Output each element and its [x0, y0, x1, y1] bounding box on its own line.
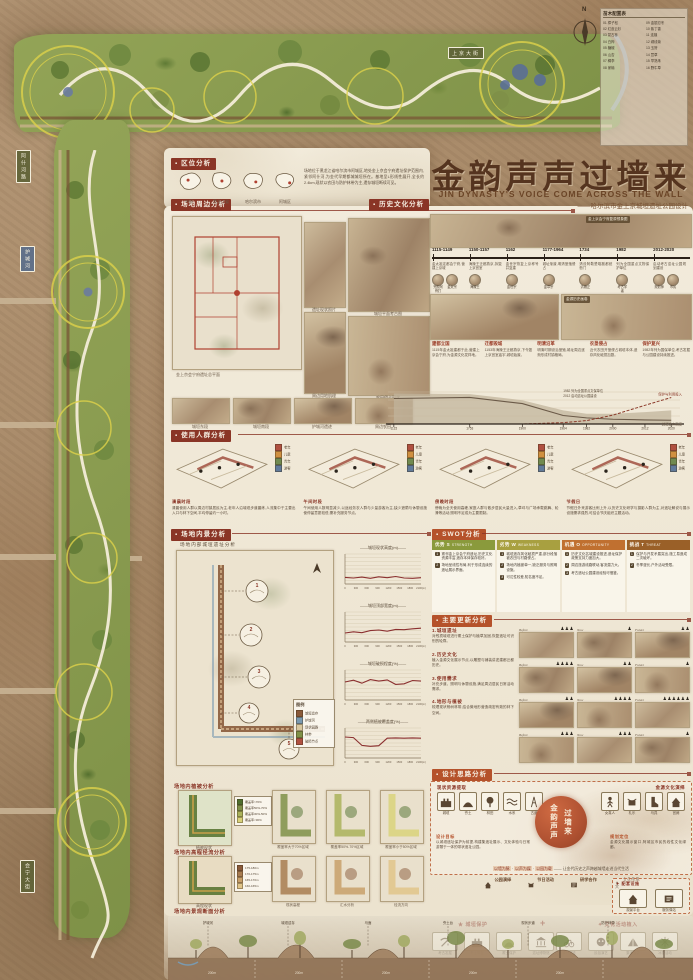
- user-legend-row: 青年: [670, 458, 686, 465]
- facility-icons: 观景平台服务驿站: [619, 889, 683, 913]
- renewal-items: 1.城垣遗址对残损城垣进行覆土保护与植草加固,恢复遗址可识别的轮廓。2.历史文化…: [432, 628, 514, 723]
- crowd-icons: ♟♟: [681, 626, 690, 632]
- legend-chip: [670, 444, 677, 451]
- user-desc: 节假日外来游客比例上升,以历史文化研学与摄影人群为主,对遗址解说与展示设施需求强…: [567, 506, 691, 517]
- renewal-col-label: Future: [635, 698, 644, 702]
- timeline-desc: 启动考古遗址公园规划建设: [653, 262, 686, 271]
- svg-text:1800: 1800: [407, 644, 413, 648]
- analysis-thumb: [380, 856, 424, 902]
- renewal-thumb: [577, 737, 632, 763]
- timeline-date: 1162: [506, 248, 540, 252]
- legend-chip: [407, 444, 414, 451]
- swot-item-bullet: 3: [500, 575, 505, 580]
- timeline-tick: [433, 254, 434, 261]
- swot-column-header: 优势 S STRENGTH: [432, 540, 495, 550]
- l-map-svg: [273, 857, 315, 901]
- svg-text:200m: 200m: [295, 971, 303, 975]
- renewal-col-label: Before: [519, 698, 528, 702]
- user-legend-row: 儿童: [538, 451, 554, 458]
- user-legend-row: 青年: [538, 458, 554, 465]
- swot-item-bullet: 2: [435, 563, 440, 568]
- icon-label: 马具: [645, 812, 663, 816]
- crowd-icons: ♟♟♟: [560, 626, 574, 632]
- timeline-desc: 金世宗恢复上京称号并复建: [506, 262, 539, 271]
- history-profile-svg: 11151753190019641982200020122020保护与利用投入城…: [382, 384, 690, 430]
- user-legend-row: 青年: [275, 458, 291, 465]
- concept-footer-item: 研学合作: [570, 876, 597, 884]
- swot-column-body: 1城垣遗存风化破损严重,部分段落被农田与村路侵占。2场地内植被单一,缺乏服务与照…: [497, 550, 560, 612]
- renewal-col-label: Before: [519, 663, 528, 667]
- timeline-portraits: 清雍正: [579, 274, 614, 290]
- concept-footer-label: 节日活动: [537, 877, 554, 883]
- svg-text:1200: 1200: [386, 586, 392, 590]
- plant-row: 16 野牛草: [646, 65, 685, 71]
- portrait-name: 完颜阿骨打: [432, 286, 444, 293]
- legend-chip: [296, 724, 303, 731]
- surrounding-photo: 城垣东段: [172, 398, 228, 429]
- svg-text:1115: 1115: [391, 427, 398, 431]
- user-legend-row: 青年: [407, 458, 423, 465]
- history-profile-chart: 11151753190019641982200020122020保护与利用投入城…: [382, 384, 690, 430]
- swot-item: 2场地呈线性布局,利于形成连续的遗址展示界面。: [435, 563, 492, 572]
- swot-item: 3考古遗址公园建设经验可借鉴。: [565, 571, 622, 576]
- swot-header-en: STRENGTH: [452, 543, 473, 547]
- photo-caption: 城垣南段: [233, 424, 289, 429]
- renewal-cell: Future♟: [635, 661, 690, 693]
- header-concept: 设计思路分析: [432, 769, 492, 781]
- svg-text:600: 600: [365, 702, 370, 706]
- surrounding-big-map-caption: 金上京会宁府遗址总平面: [176, 372, 300, 377]
- concept-left-para-text: 以城垣遗址保护为前提,构建集遗址展示、文化体验与日常游憩于一体的带状遗址公园。: [436, 840, 530, 851]
- wall-icon: [440, 796, 452, 808]
- swot-item-text: 可达性较差,知名度不足。: [506, 575, 545, 580]
- mound-icon: [462, 796, 474, 808]
- concept-box: 现状资源提取 金源文化演绎 城垣夯土林田水系古道 女真人礼乐马具宫阙 金韵声声 …: [430, 781, 692, 875]
- renewal-cell: Now♟♟♟: [577, 731, 632, 763]
- legend-chip: [670, 458, 677, 465]
- icon-label: 夯土: [459, 812, 477, 816]
- user-axon-diagram: [172, 440, 272, 497]
- svg-text:2012: 2012: [641, 427, 648, 431]
- renewal-item-desc: 补充步道、照明与休憩设施,满足周边居民日常活动需求。: [432, 682, 514, 693]
- drum-icon: [527, 881, 535, 889]
- svg-text:城垣遗存高度: 城垣遗存高度: [662, 421, 683, 426]
- l-map-svg: [273, 791, 315, 843]
- crowd-icons: ♟♟: [565, 696, 574, 702]
- concept-footer-item: 公园演绎: [484, 876, 511, 884]
- swot-header-en: THREAT: [646, 543, 661, 547]
- timeline-portraits: 规划师市民: [653, 274, 688, 290]
- location-paragraph: 场地位于黑龙江省哈尔滨市阿城区,地处金上京会宁府遗址保护范围内,紧邻阿什河,为金…: [304, 168, 424, 204]
- concept-right-para-text: 金源文化展示窗口,阿城区市民的线性文化绿廊。: [610, 840, 686, 851]
- inner-mini-charts: ——城垣现状高度(m)——03006009001200150018002100(…: [337, 546, 429, 778]
- tower-icon: [484, 881, 492, 889]
- svg-text:200m: 200m: [382, 971, 390, 975]
- seal-line-2: 过墙来: [563, 809, 574, 836]
- poster-root: N 苗木配置表 01 樟子松02 红皮云杉03 蒙古栎04 白桦05 糖槭06 …: [0, 0, 693, 980]
- swot-item-text: 场地内植被单一,缺乏服务与照明设施。: [506, 563, 557, 572]
- history-collage-war: [430, 294, 559, 340]
- swot-header-en: WEAKNESS: [518, 543, 539, 547]
- user-axon-diagram: [567, 440, 667, 497]
- svg-text:防护林带: 防护林带: [601, 920, 615, 925]
- water-iconbox: [503, 792, 521, 811]
- svg-text:900: 900: [375, 760, 380, 764]
- user-legend-row: 游客: [407, 465, 423, 472]
- legend-chip: [407, 465, 414, 472]
- location-map-label: 黑龙江省: [207, 199, 235, 204]
- user-legend-row: 游客: [275, 465, 291, 472]
- location-map: 黑龙江省: [207, 168, 235, 206]
- renewal-item: 1.城垣遗址对残损城垣进行覆土保护与植草加固,恢复遗址可识别的轮廓。: [432, 628, 514, 645]
- svg-text:1753: 1753: [466, 427, 473, 431]
- concept-footer-item: 节日活动: [527, 876, 554, 884]
- l-map-svg: [179, 791, 231, 845]
- mini-chart-svg: 03006009001200150018002100(m): [337, 550, 427, 594]
- swot-column-body: 1紧邻金上京会宁府遗址,历史文化资源丰富,遗存本体保存较好。2场地呈线性布局,利…: [432, 550, 495, 612]
- renewal-col-label: Now: [577, 733, 583, 737]
- l-map-svg: [381, 791, 423, 843]
- icon-label: 林田: [481, 812, 499, 816]
- timeline-date: 1177-1964: [543, 248, 577, 252]
- legend-row: 护城河: [296, 717, 332, 724]
- concept-right-group-label: 金源文化演绎: [656, 785, 685, 791]
- mini-chart-svg: 03006009001200150018002100(m): [337, 666, 427, 710]
- tower-iconbox: [619, 889, 647, 908]
- location-map: 哈尔滨市: [239, 168, 267, 206]
- drum-mini: [527, 876, 535, 884]
- poster-subtitle: ——哈尔滨市金上京城垣遗址公园设计: [430, 200, 688, 210]
- rule-users: [238, 434, 688, 435]
- mini-chart-svg: 03006009001200150018002100(m): [337, 724, 427, 768]
- swot-column-body: 1保护与开发矛盾突出,施工易造成二次破坏。2冬季漫长,户外活动受限。: [627, 550, 690, 612]
- timeline-date: 1150-1157: [469, 248, 503, 252]
- location-map: 阿城区: [271, 168, 299, 206]
- renewal-thumb: [519, 702, 574, 728]
- boot-icon: [648, 796, 660, 808]
- mini-chart: ——两侧植被覆盖度(%)——03006009001200150018002100…: [337, 720, 429, 773]
- legend-chip: [237, 817, 243, 823]
- timeline-date: 2012-2020: [653, 248, 687, 252]
- header-hydro: 场地内高程径流分析: [174, 849, 225, 856]
- header-swot: SWOT分析: [432, 529, 486, 541]
- user-desc: 午间使用人数明显减少,以途经务农人群与少量游客为主,缺少遮荫与休憩设施使停留意愿…: [304, 506, 428, 517]
- user-group-cell: 老年儿童青年游客午间时段午间使用人数明显减少,以途经务农人群与少量游客为主,缺少…: [304, 440, 428, 517]
- timeline-tick: [617, 254, 618, 261]
- svg-text:1: 1: [256, 583, 259, 589]
- svg-text:300: 300: [354, 702, 359, 706]
- svg-text:保护与利用投入: 保护与利用投入: [658, 391, 682, 396]
- user-legend: 老年儿童青年游客: [275, 440, 291, 497]
- renewal-item-desc: 植入金源文化展示节点,以雕塑与铺装讲述建都迁都历史。: [432, 658, 514, 669]
- swot-item-text: 保护与开发矛盾突出,施工易造成二次破坏。: [636, 552, 687, 561]
- svg-text:2100(m): 2100(m): [416, 644, 426, 648]
- user-diagram-wrap: 老年儿童青年游客: [172, 440, 296, 497]
- svg-text:200m: 200m: [556, 971, 564, 975]
- renewal-cell: Future♟♟: [635, 626, 690, 658]
- inner-plan-legend: 图例 城垣遗存护城河现状园路林带破损节点: [293, 699, 335, 748]
- svg-text:900: 900: [375, 586, 380, 590]
- renewal-cell: Before♟♟♟♟: [519, 661, 574, 693]
- timeline-tick: [580, 254, 581, 261]
- history-timeline: 1115-1149金太祖定都会宁府,营建上京城完颜阿骨打金太宗1150-1157…: [432, 248, 690, 292]
- renewal-thumb: [635, 702, 690, 728]
- street-label-top: 上京大街: [448, 47, 484, 59]
- surrounding-plan-lines: [173, 217, 301, 369]
- icon-item: 服务驿站: [655, 889, 683, 913]
- history-event-title: 明清沿革: [537, 341, 585, 347]
- tower-icon: [627, 893, 639, 905]
- legend-chip: [296, 738, 303, 745]
- analysis-main-map: [178, 790, 232, 846]
- users-row: 老年儿童青年游客清晨时段清晨使用人群以周边村镇居民为主,老年人沿城垣步道晨练,人…: [172, 440, 690, 517]
- plant-schedule: 苗木配置表 01 樟子松02 红皮云杉03 蒙古栎04 白桦05 糖槭06 山杏…: [600, 8, 688, 146]
- plant-schedule-title: 苗木配置表: [603, 11, 685, 18]
- analysis-thumb-caption: 径流方向: [376, 903, 426, 907]
- renewal-item: 3.使用需求补充步道、照明与休憩设施,满足周边居民日常活动需求。: [432, 676, 514, 693]
- crowd-icons: ♟: [627, 626, 632, 632]
- tower-iconbox: [667, 792, 685, 811]
- slogan-highlight: 以墙为脉: [493, 866, 511, 871]
- portrait-name: 考古学者: [616, 286, 628, 293]
- icon-label: 水系: [503, 812, 521, 816]
- user-time-label: 清晨时段: [172, 499, 296, 505]
- mini-chart: ——城垣破损程度(%)——03006009001200150018002100(…: [337, 662, 429, 715]
- analysis-thumb-caption: 覆盖率大于70%区域: [268, 845, 318, 849]
- portrait-wrap: 金世宗: [506, 274, 518, 290]
- svg-text:夯土台: 夯土台: [443, 920, 454, 925]
- svg-text:1982 列为全国重点文保单位: 1982 列为全国重点文保单位: [563, 388, 604, 393]
- swot-item-text: 周边旅游线路联动,客流潜力大。: [571, 563, 621, 568]
- concept-right-icons: 女真人礼乐马具宫阙: [601, 792, 685, 816]
- user-diagram-wrap: 老年儿童青年游客: [567, 440, 691, 497]
- swot-item-bullet: 2: [565, 563, 570, 568]
- location-map-label: 哈尔滨市: [239, 199, 267, 204]
- svg-text:4: 4: [248, 705, 251, 711]
- timeline-tick: [507, 254, 508, 261]
- history-event: 明清沿革明清时期设治垦殖,城址周边逐渐形成村镇格局。: [537, 341, 585, 357]
- facility-label: ✦ 配套设施: [616, 881, 639, 887]
- user-legend-row: 老年: [670, 444, 686, 451]
- icon-item: 宫阙: [667, 792, 685, 816]
- analysis-thumb-caption: 现状高程: [268, 903, 318, 907]
- slogan-highlight: 以园为载: [535, 866, 553, 871]
- scroll-icon: [663, 893, 675, 905]
- history-events-row: 建都立国1115年金太祖建都于此,营建上京会宁府,为金源文化发祥地。迁都毁城11…: [432, 341, 690, 357]
- seal-line-1: 金韵声声: [549, 804, 560, 840]
- header-inner: 场地内景分析: [171, 529, 231, 541]
- header-veg: 场地内植被分析: [174, 783, 214, 790]
- user-legend-row: 老年: [407, 444, 423, 451]
- swot-item-bullet: 3: [565, 571, 570, 576]
- history-event-title: 农垦侵占: [590, 341, 638, 347]
- swot-column-header: 劣势 W WEAKNESS: [497, 540, 560, 550]
- analysis-thumb: [380, 790, 424, 844]
- legend-chip: [275, 444, 282, 451]
- photo-thumb: [172, 398, 230, 424]
- legend-title: 图例: [296, 702, 332, 708]
- renewal-cell: Now♟: [577, 626, 632, 658]
- timeline-date: 1115-1149: [432, 248, 466, 252]
- mini-chart: ——城垣现状高度(m)——03006009001200150018002100(…: [337, 546, 429, 599]
- timeline-date: 1734: [579, 248, 613, 252]
- icon-item: 水系: [503, 792, 521, 816]
- analysis-thumb: [272, 856, 316, 902]
- analysis-thumb-caption: 汇水分析: [322, 903, 372, 907]
- user-time-label: 傍晚时段: [435, 499, 559, 505]
- swot-column: 劣势 W WEAKNESS1城垣遗存风化破损严重,部分段落被农田与村路侵占。2场…: [497, 540, 560, 612]
- l-map-svg: [327, 857, 369, 901]
- analysis-main-caption: 高程现状: [178, 903, 230, 908]
- renewal-cell-bar: Future♟♟♟♟♟♟: [635, 696, 690, 702]
- timeline-desc: 海陵王迁都燕京,拆毁上京宫室: [469, 262, 502, 271]
- icon-item: 礼乐: [623, 792, 641, 816]
- swot-item-bullet: 1: [565, 552, 570, 557]
- svg-text:900: 900: [375, 702, 380, 706]
- renewal-col-label: Now: [577, 698, 583, 702]
- renewal-item-desc: 梳理现状杨树林带,结合微地形营造疏密有致的林下空间。: [432, 705, 514, 716]
- renewal-col-label: Before: [519, 733, 528, 737]
- tree-iconbox: [481, 792, 499, 811]
- svg-text:0: 0: [344, 586, 346, 590]
- l-map-svg: [179, 857, 231, 903]
- facility-box: ✦ 配套设施 观景平台服务驿站: [612, 878, 690, 914]
- photo-caption: 护城河遗迹: [294, 424, 350, 429]
- timeline-desc: 清设阿勒楚喀副都统衙门: [579, 262, 612, 271]
- svg-text:0: 0: [344, 644, 346, 648]
- renewal-item: 4.地形与植被梳理现状杨树林带,结合微地形营造疏密有致的林下空间。: [432, 699, 514, 716]
- region-outline-icon: [175, 168, 203, 194]
- portrait-name: 海陵王: [469, 286, 481, 290]
- svg-text:0: 0: [344, 760, 346, 764]
- analysis-main-map: [178, 856, 232, 904]
- mound-iconbox: [459, 792, 477, 811]
- compass-label: N: [582, 7, 586, 13]
- swot-item: 3可达性较差,知名度不足。: [500, 575, 557, 580]
- svg-text:马面: 马面: [365, 920, 372, 925]
- history-event: 迁都毁城1153年海陵王迁都燕京,下令毁上京宫室庙宇,城垣始废。: [485, 341, 533, 357]
- location-map: 中国: [175, 168, 203, 206]
- swot-item: 1历史文化名城建设推进,遗址保护政策支持力度加大。: [565, 552, 622, 561]
- scroll-icon: [570, 881, 578, 889]
- legend-chip: [296, 717, 303, 724]
- user-desc: 清晨使用人群以周边村镇居民为主,老年人沿城垣步道晨练,人流集中于主要出入口与林下…: [172, 506, 296, 517]
- surrounding-big-map: [172, 216, 302, 370]
- inner-plan: 123 45 图例 城垣遗存护城河现状园路林带破损节点: [176, 550, 334, 766]
- analysis-thumb: [326, 856, 370, 902]
- icon-label: 宫阙: [667, 812, 685, 816]
- svg-text:0: 0: [344, 702, 346, 706]
- swot-item: 2周边旅游线路联动,客流潜力大。: [565, 563, 622, 568]
- svg-text:1900: 1900: [519, 427, 526, 431]
- portrait-wrap: 市民: [667, 274, 679, 290]
- legend-chip: [296, 710, 303, 717]
- legend-chip: [407, 458, 414, 465]
- crowd-icons: ♟: [685, 661, 690, 667]
- axon-plan-svg: [567, 440, 667, 492]
- user-legend-row: 老年: [538, 444, 554, 451]
- crowd-icons: ♟: [685, 731, 690, 737]
- svg-text:300: 300: [354, 644, 359, 648]
- history-event-desc: 1115年金太祖建都于此,营建上京会宁府,为金源文化发祥地。: [432, 348, 480, 357]
- user-diagram-wrap: 老年儿童青年游客: [304, 440, 428, 497]
- plant-row: 08 家榆: [603, 65, 642, 71]
- legend-chip: [296, 731, 303, 738]
- svg-text:1500: 1500: [396, 644, 402, 648]
- history-event-desc: 1153年海陵王迁都燕京,下令毁上京宫室庙宇,城垣始废。: [485, 348, 533, 357]
- location-map-label: 中国: [175, 199, 203, 204]
- person-iconbox: [601, 792, 619, 811]
- landscape-section-drawing: 护城河城垣遗存马面夯土台现状步道防护林带200m200m200m200m200m: [168, 916, 693, 980]
- user-desc: 傍晚为全天使用高峰,家庭人群与散步居民大量进入,草坪与广场承载跳舞、轮滑等活动,…: [435, 506, 559, 517]
- svg-text:1982: 1982: [583, 427, 590, 431]
- history-event-desc: 1982年列为国保单位,考古发掘与公园建设持续推进。: [642, 348, 690, 357]
- legend-row: 城垣遗存: [296, 710, 332, 717]
- person-icon: [604, 796, 616, 808]
- icon-item: 观景平台: [619, 889, 647, 913]
- swot-item-text: 场地呈线性布局,利于形成连续的遗址展示界面。: [442, 563, 493, 572]
- renewal-thumb: [635, 737, 690, 763]
- svg-text:3: 3: [258, 669, 261, 675]
- user-group-cell: 老年儿童青年游客傍晚时段傍晚为全天使用高峰,家庭人群与散步居民大量进入,草坪与广…: [435, 440, 559, 517]
- history-event: 农垦侵占近代农田开垦侵占城垣本体,遗存风化破损加剧。: [590, 341, 638, 357]
- wall-iconbox: [437, 792, 455, 811]
- river-label: 护城河: [20, 246, 35, 272]
- swot-item-text: 城垣遗存风化破损严重,部分段落被农田与村路侵占。: [506, 552, 557, 561]
- renewal-thumb: [519, 632, 574, 658]
- legend-row: 林带: [296, 731, 332, 738]
- renewal-cell: Future♟: [635, 731, 690, 763]
- street-label-left-bottom: 会宁大街: [20, 860, 35, 893]
- portrait-wrap: 考古学者: [616, 274, 628, 293]
- icon-label: 女真人: [601, 812, 619, 816]
- svg-text:600: 600: [365, 586, 370, 590]
- surrounding-figure: [304, 222, 346, 308]
- user-legend-row: 老年: [275, 444, 291, 451]
- renewal-col-label: Future: [635, 663, 644, 667]
- concept-seal: 金韵声声 过墙来: [535, 796, 587, 848]
- user-axon-diagram: [304, 440, 404, 497]
- portrait-wrap: 清雍正: [579, 274, 591, 290]
- concept-right-para: 规划定位 金源文化展示窗口,阿城区市民的线性文化绿廊。: [610, 834, 686, 851]
- portrait-name: 金太宗: [446, 286, 458, 290]
- svg-text:2100(m): 2100(m): [416, 586, 426, 590]
- portrait-wrap: 金章宗: [543, 274, 555, 290]
- svg-text:现状步道: 现状步道: [521, 920, 535, 925]
- portrait-wrap: 金太宗: [446, 274, 458, 293]
- scroll-mini: [570, 876, 578, 884]
- portrait-name: 规划师: [653, 286, 665, 290]
- plant-schedule-rows: 01 樟子松02 红皮云杉03 蒙古栎04 白桦05 糖槭06 山杏07 稠李0…: [603, 20, 685, 72]
- icon-item: 马具: [645, 792, 663, 816]
- renewal-grid-row: Before♟♟Now♟♟♟♟Future♟♟♟♟♟♟: [519, 696, 690, 728]
- renewal-thumb: [577, 667, 632, 693]
- svg-text:2012 启动遗址公园建设: 2012 启动遗址公园建设: [563, 393, 597, 398]
- svg-text:300: 300: [354, 586, 359, 590]
- renewal-thumb: [577, 632, 632, 658]
- timeline-tick: [544, 254, 545, 261]
- analysis-thumb-caption: 覆盖率小于50%区域: [376, 845, 426, 849]
- swot-item-text: 紧邻金上京会宁府遗址,历史文化资源丰富,遗存本体保存较好。: [442, 552, 493, 561]
- svg-text:1800: 1800: [407, 760, 413, 764]
- l-map-svg: [381, 857, 423, 901]
- surrounding-figure: [348, 218, 430, 312]
- svg-text:1200: 1200: [386, 702, 392, 706]
- poster-title-en: JIN DYNASTY'S VOICE COME ACROSS THE WALL: [430, 189, 692, 199]
- svg-text:1500: 1500: [396, 760, 402, 764]
- user-legend: 老年儿童青年游客: [670, 440, 686, 497]
- concept-left-icons: 城垣夯土林田水系古道: [437, 792, 543, 816]
